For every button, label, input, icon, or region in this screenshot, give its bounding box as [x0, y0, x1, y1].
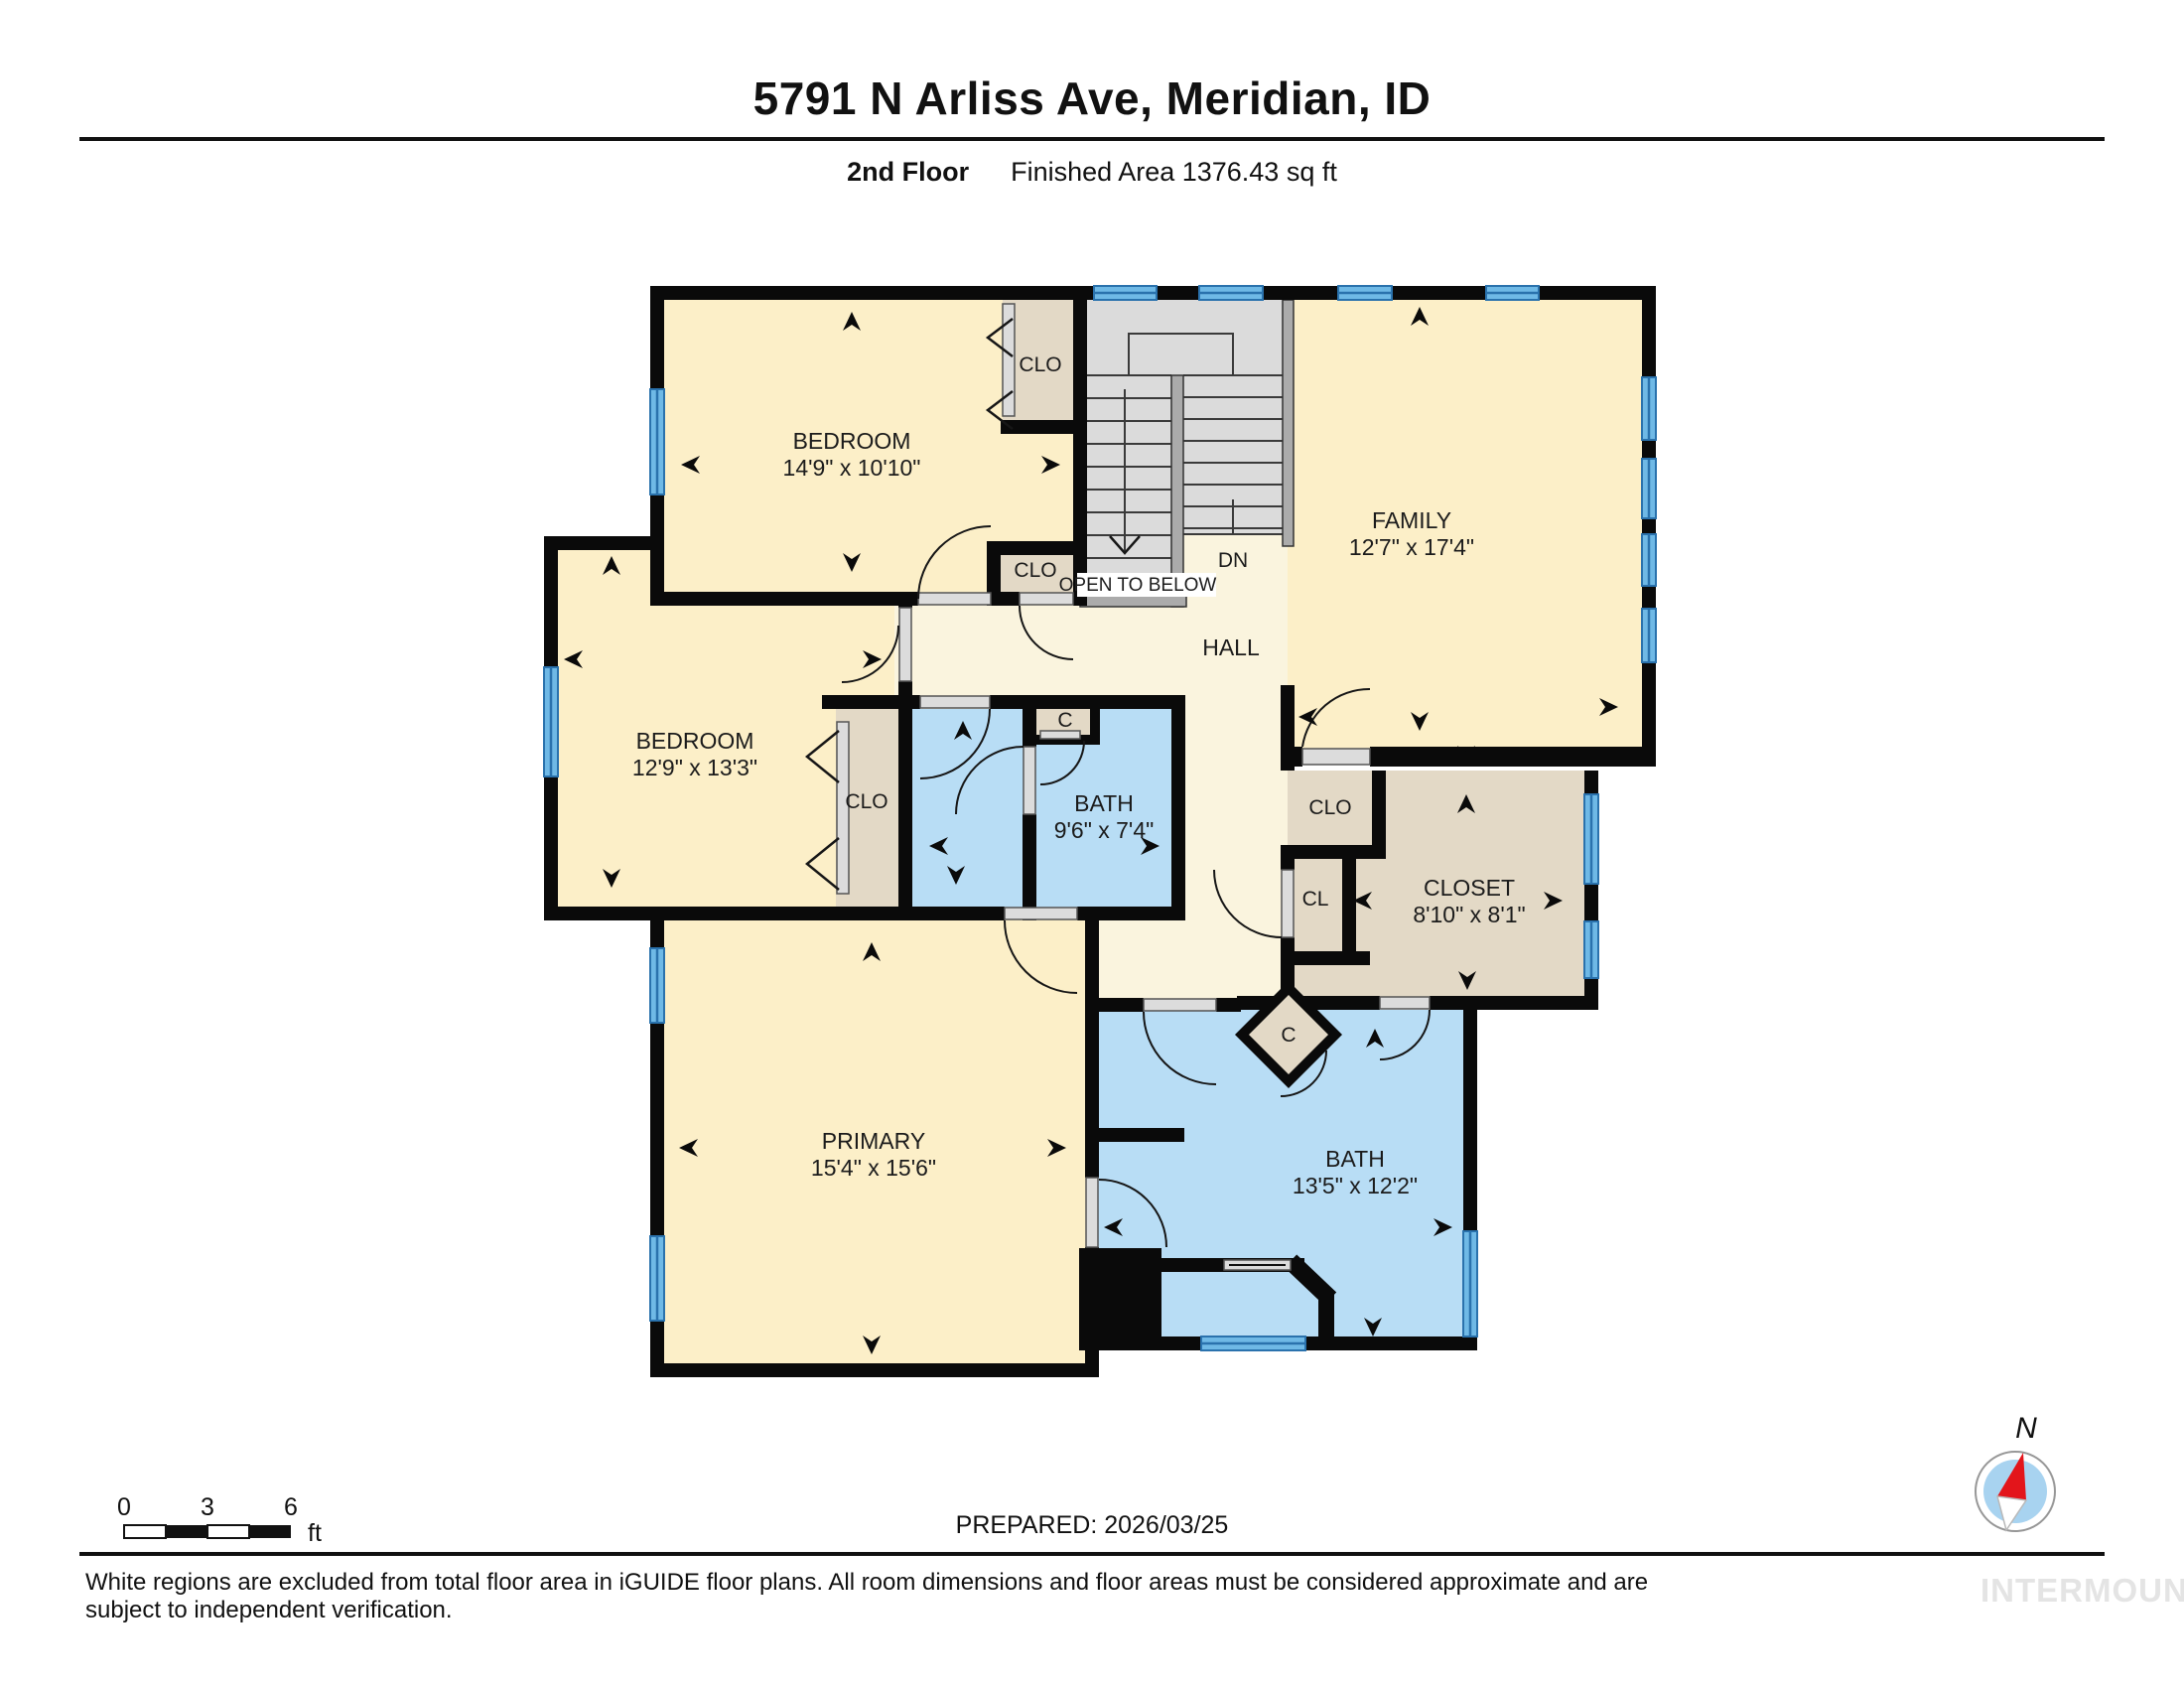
window — [1584, 794, 1598, 884]
window — [1094, 286, 1157, 300]
door-leaf — [918, 593, 991, 605]
family-dims: 12'7" x 17'4" — [1349, 534, 1474, 560]
bath-small-label: BATH — [1074, 790, 1134, 816]
open-to-below-label: OPEN TO BELOW — [1059, 575, 1217, 596]
excluded-black-region — [1079, 1248, 1161, 1350]
cabinet-label: C — [1281, 1024, 1296, 1047]
primary-dims: 15'4" x 15'6" — [811, 1155, 936, 1181]
closet-label: CLO — [1019, 353, 1061, 376]
window — [1463, 1231, 1477, 1336]
window — [544, 667, 558, 776]
window — [1338, 286, 1392, 300]
footer-divider — [79, 1552, 2105, 1556]
compass-north-label: N — [2015, 1412, 2037, 1445]
family-label: FAMILY — [1372, 507, 1451, 533]
window — [650, 389, 664, 494]
window — [1642, 459, 1656, 518]
window — [1642, 534, 1656, 586]
intermountain-watermark: INTERMOUNTAIN — [1980, 1572, 2184, 1610]
hall-floor-bath-entry — [1092, 914, 1288, 1010]
bedroom-left-dims: 12'9" x 13'3" — [632, 755, 757, 780]
walkin-closet-label: CLOSET — [1424, 875, 1515, 901]
closet-label: CLO — [1014, 559, 1056, 582]
stair-right-railing — [1283, 300, 1294, 546]
door-leaf — [1302, 749, 1370, 765]
door-leaf — [1282, 870, 1294, 937]
window — [1486, 286, 1539, 300]
bedroom-top-dims: 14'9" x 10'10" — [783, 455, 921, 481]
door-leaf — [1380, 997, 1430, 1009]
window — [1642, 609, 1656, 662]
stair-center-railing — [1171, 375, 1183, 607]
door-leaf — [1005, 908, 1077, 919]
walkin-closet-dims: 8'10" x 8'1" — [1413, 902, 1525, 927]
shower-glass-door — [1224, 1260, 1291, 1270]
closet-label: CLO — [845, 790, 887, 813]
family-floor — [1288, 293, 1649, 754]
door-leaf — [1024, 747, 1035, 814]
window — [650, 948, 664, 1023]
window — [650, 1236, 664, 1321]
door-leaf — [920, 696, 990, 708]
disclaimer-text: White regions are excluded from total fl… — [85, 1569, 1723, 1624]
closet-label: CLO — [1308, 796, 1351, 819]
floorplan-page: 5791 N Arliss Ave, Meridian, ID 2nd Floo… — [0, 0, 2184, 1688]
bedroom-left-label: BEDROOM — [636, 728, 754, 754]
door-leaf — [1144, 999, 1216, 1011]
cabinet-label: C — [1057, 709, 1072, 732]
floorplan-drawing: BEDROOM 14'9" x 10'10" CLO CLO OPEN TO B… — [0, 0, 2184, 1688]
window — [1199, 286, 1263, 300]
window — [1201, 1336, 1305, 1350]
bedroom-top-label: BEDROOM — [793, 428, 911, 454]
window — [1584, 921, 1598, 978]
bath-large-label: BATH — [1325, 1146, 1385, 1172]
linen-closet-label: CL — [1302, 888, 1329, 911]
bath-large-dims: 13'5" x 12'2" — [1293, 1173, 1418, 1198]
prepared-date: PREPARED: 2026/03/25 — [0, 1511, 2184, 1540]
hall-label: HALL — [1202, 634, 1260, 660]
window — [1642, 377, 1656, 440]
stairs-down-label: DN — [1218, 549, 1248, 572]
bath-small-dims: 9'6" x 7'4" — [1054, 817, 1155, 843]
primary-label: PRIMARY — [822, 1128, 925, 1154]
door-leaf — [1040, 731, 1080, 739]
door-leaf — [1086, 1178, 1098, 1247]
door-leaf — [899, 608, 911, 681]
